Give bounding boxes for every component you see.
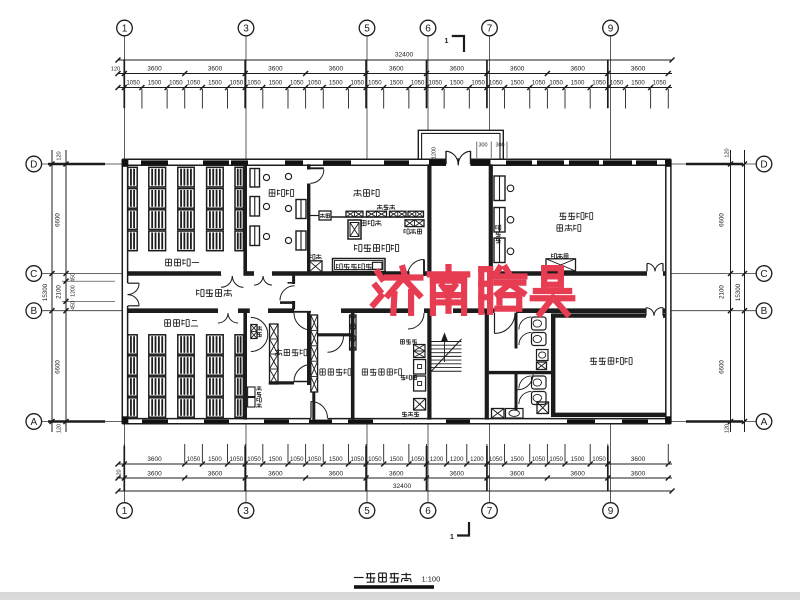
svg-text:120: 120 <box>57 151 63 160</box>
svg-text:1050: 1050 <box>187 456 201 463</box>
svg-text:6600: 6600 <box>55 360 62 374</box>
svg-text:1050: 1050 <box>247 456 261 463</box>
svg-text:1050: 1050 <box>350 79 364 86</box>
svg-text:1500: 1500 <box>631 79 645 86</box>
svg-text:1200: 1200 <box>450 456 464 463</box>
svg-text:3600: 3600 <box>147 456 162 463</box>
svg-text:3600: 3600 <box>510 66 525 73</box>
svg-text:1050: 1050 <box>532 456 546 463</box>
svg-text:1050: 1050 <box>169 79 183 86</box>
svg-text:1500: 1500 <box>571 79 585 86</box>
svg-text:9: 9 <box>608 506 614 517</box>
svg-text:1: 1 <box>445 38 449 45</box>
svg-text:6: 6 <box>425 506 431 517</box>
svg-text:1200: 1200 <box>470 456 484 463</box>
svg-text:3: 3 <box>243 506 249 517</box>
svg-text:1500: 1500 <box>329 456 343 463</box>
svg-text:B: B <box>30 306 37 317</box>
svg-text:1050: 1050 <box>489 79 503 86</box>
svg-text:1200: 1200 <box>71 285 77 297</box>
svg-text:300: 300 <box>479 143 488 149</box>
svg-text:6600: 6600 <box>55 213 62 227</box>
svg-text:3600: 3600 <box>147 470 162 477</box>
svg-text:3600: 3600 <box>631 470 646 477</box>
svg-text:9: 9 <box>608 24 614 35</box>
svg-text:1500: 1500 <box>269 456 283 463</box>
svg-text:15300: 15300 <box>735 283 742 301</box>
svg-text:3600: 3600 <box>268 470 283 477</box>
svg-text:3600: 3600 <box>570 66 585 73</box>
svg-text:1050: 1050 <box>592 79 606 86</box>
svg-text:1500: 1500 <box>450 79 464 86</box>
svg-text:32400: 32400 <box>393 483 412 490</box>
svg-text:3600: 3600 <box>449 470 464 477</box>
svg-text:1050: 1050 <box>368 79 382 86</box>
svg-text:2100: 2100 <box>719 285 726 299</box>
svg-text:3600: 3600 <box>208 470 223 477</box>
svg-text:120: 120 <box>725 148 731 157</box>
svg-text:1500: 1500 <box>510 456 524 463</box>
svg-text:1050: 1050 <box>532 79 546 86</box>
svg-text:1500: 1500 <box>208 456 222 463</box>
svg-text:1050: 1050 <box>411 456 425 463</box>
svg-text:1500: 1500 <box>571 456 585 463</box>
svg-text:1050: 1050 <box>230 79 244 86</box>
svg-text:300: 300 <box>496 143 505 149</box>
svg-text:6600: 6600 <box>719 213 726 227</box>
svg-text:3600: 3600 <box>389 66 404 73</box>
svg-text:A: A <box>30 417 37 428</box>
svg-text:32400: 32400 <box>395 52 414 59</box>
svg-text:3600: 3600 <box>329 470 344 477</box>
svg-text:6: 6 <box>425 24 431 35</box>
svg-text:1: 1 <box>122 24 128 35</box>
svg-text:15300: 15300 <box>42 283 49 301</box>
svg-text:1200: 1200 <box>432 147 438 159</box>
svg-text:D: D <box>760 160 767 171</box>
svg-text:7: 7 <box>487 24 493 35</box>
svg-text:1050: 1050 <box>610 79 624 86</box>
svg-text:1050: 1050 <box>368 456 382 463</box>
svg-text:C: C <box>760 269 767 280</box>
svg-text:1050: 1050 <box>592 456 606 463</box>
svg-text:120: 120 <box>111 67 120 73</box>
svg-text:1:100: 1:100 <box>422 575 441 584</box>
svg-text:1500: 1500 <box>389 456 403 463</box>
svg-text:1050: 1050 <box>411 79 425 86</box>
svg-text:6600: 6600 <box>719 360 726 374</box>
svg-text:3600: 3600 <box>631 66 646 73</box>
svg-text:450: 450 <box>71 301 77 310</box>
svg-text:1050: 1050 <box>549 79 563 86</box>
svg-text:1050: 1050 <box>308 456 322 463</box>
svg-text:1050: 1050 <box>290 456 304 463</box>
svg-text:1050: 1050 <box>230 456 244 463</box>
svg-text:120: 120 <box>725 424 731 433</box>
svg-text:3600: 3600 <box>268 66 283 73</box>
svg-text:5: 5 <box>364 506 370 517</box>
svg-text:B: B <box>761 306 768 317</box>
svg-text:1: 1 <box>122 506 128 517</box>
svg-text:3600: 3600 <box>389 470 404 477</box>
svg-text:D: D <box>30 160 37 171</box>
svg-text:3600: 3600 <box>510 470 525 477</box>
svg-text:1500: 1500 <box>148 79 162 86</box>
svg-text:1050: 1050 <box>653 79 667 86</box>
svg-text:A: A <box>761 417 768 428</box>
svg-text:C: C <box>30 269 37 280</box>
svg-text:1050: 1050 <box>187 79 201 86</box>
svg-text:1050: 1050 <box>290 79 304 86</box>
svg-text:3600: 3600 <box>449 66 464 73</box>
svg-text:1050: 1050 <box>489 456 503 463</box>
svg-text:3600: 3600 <box>329 66 344 73</box>
svg-text:1050: 1050 <box>247 79 261 86</box>
svg-text:3600: 3600 <box>631 456 646 463</box>
svg-text:1500: 1500 <box>389 79 403 86</box>
svg-text:1050: 1050 <box>429 79 443 86</box>
svg-text:120: 120 <box>57 424 63 433</box>
svg-text:1050: 1050 <box>308 79 322 86</box>
svg-text:2100: 2100 <box>56 285 63 299</box>
svg-text:1050: 1050 <box>350 456 364 463</box>
svg-text:1500: 1500 <box>269 79 283 86</box>
svg-text:1500: 1500 <box>329 79 343 86</box>
svg-text:3600: 3600 <box>208 66 223 73</box>
svg-text:7: 7 <box>487 506 493 517</box>
svg-text:1050: 1050 <box>549 456 563 463</box>
svg-text:1500: 1500 <box>510 79 524 86</box>
svg-text:3: 3 <box>243 24 249 35</box>
svg-text:1500: 1500 <box>208 79 222 86</box>
svg-text:1050: 1050 <box>126 79 140 86</box>
svg-text:1050: 1050 <box>471 79 485 86</box>
svg-text:3600: 3600 <box>570 470 585 477</box>
svg-text:450: 450 <box>71 273 77 282</box>
svg-text:3600: 3600 <box>147 66 162 73</box>
svg-text:5: 5 <box>364 24 370 35</box>
svg-text:1200: 1200 <box>430 456 444 463</box>
svg-text:1: 1 <box>450 534 454 541</box>
